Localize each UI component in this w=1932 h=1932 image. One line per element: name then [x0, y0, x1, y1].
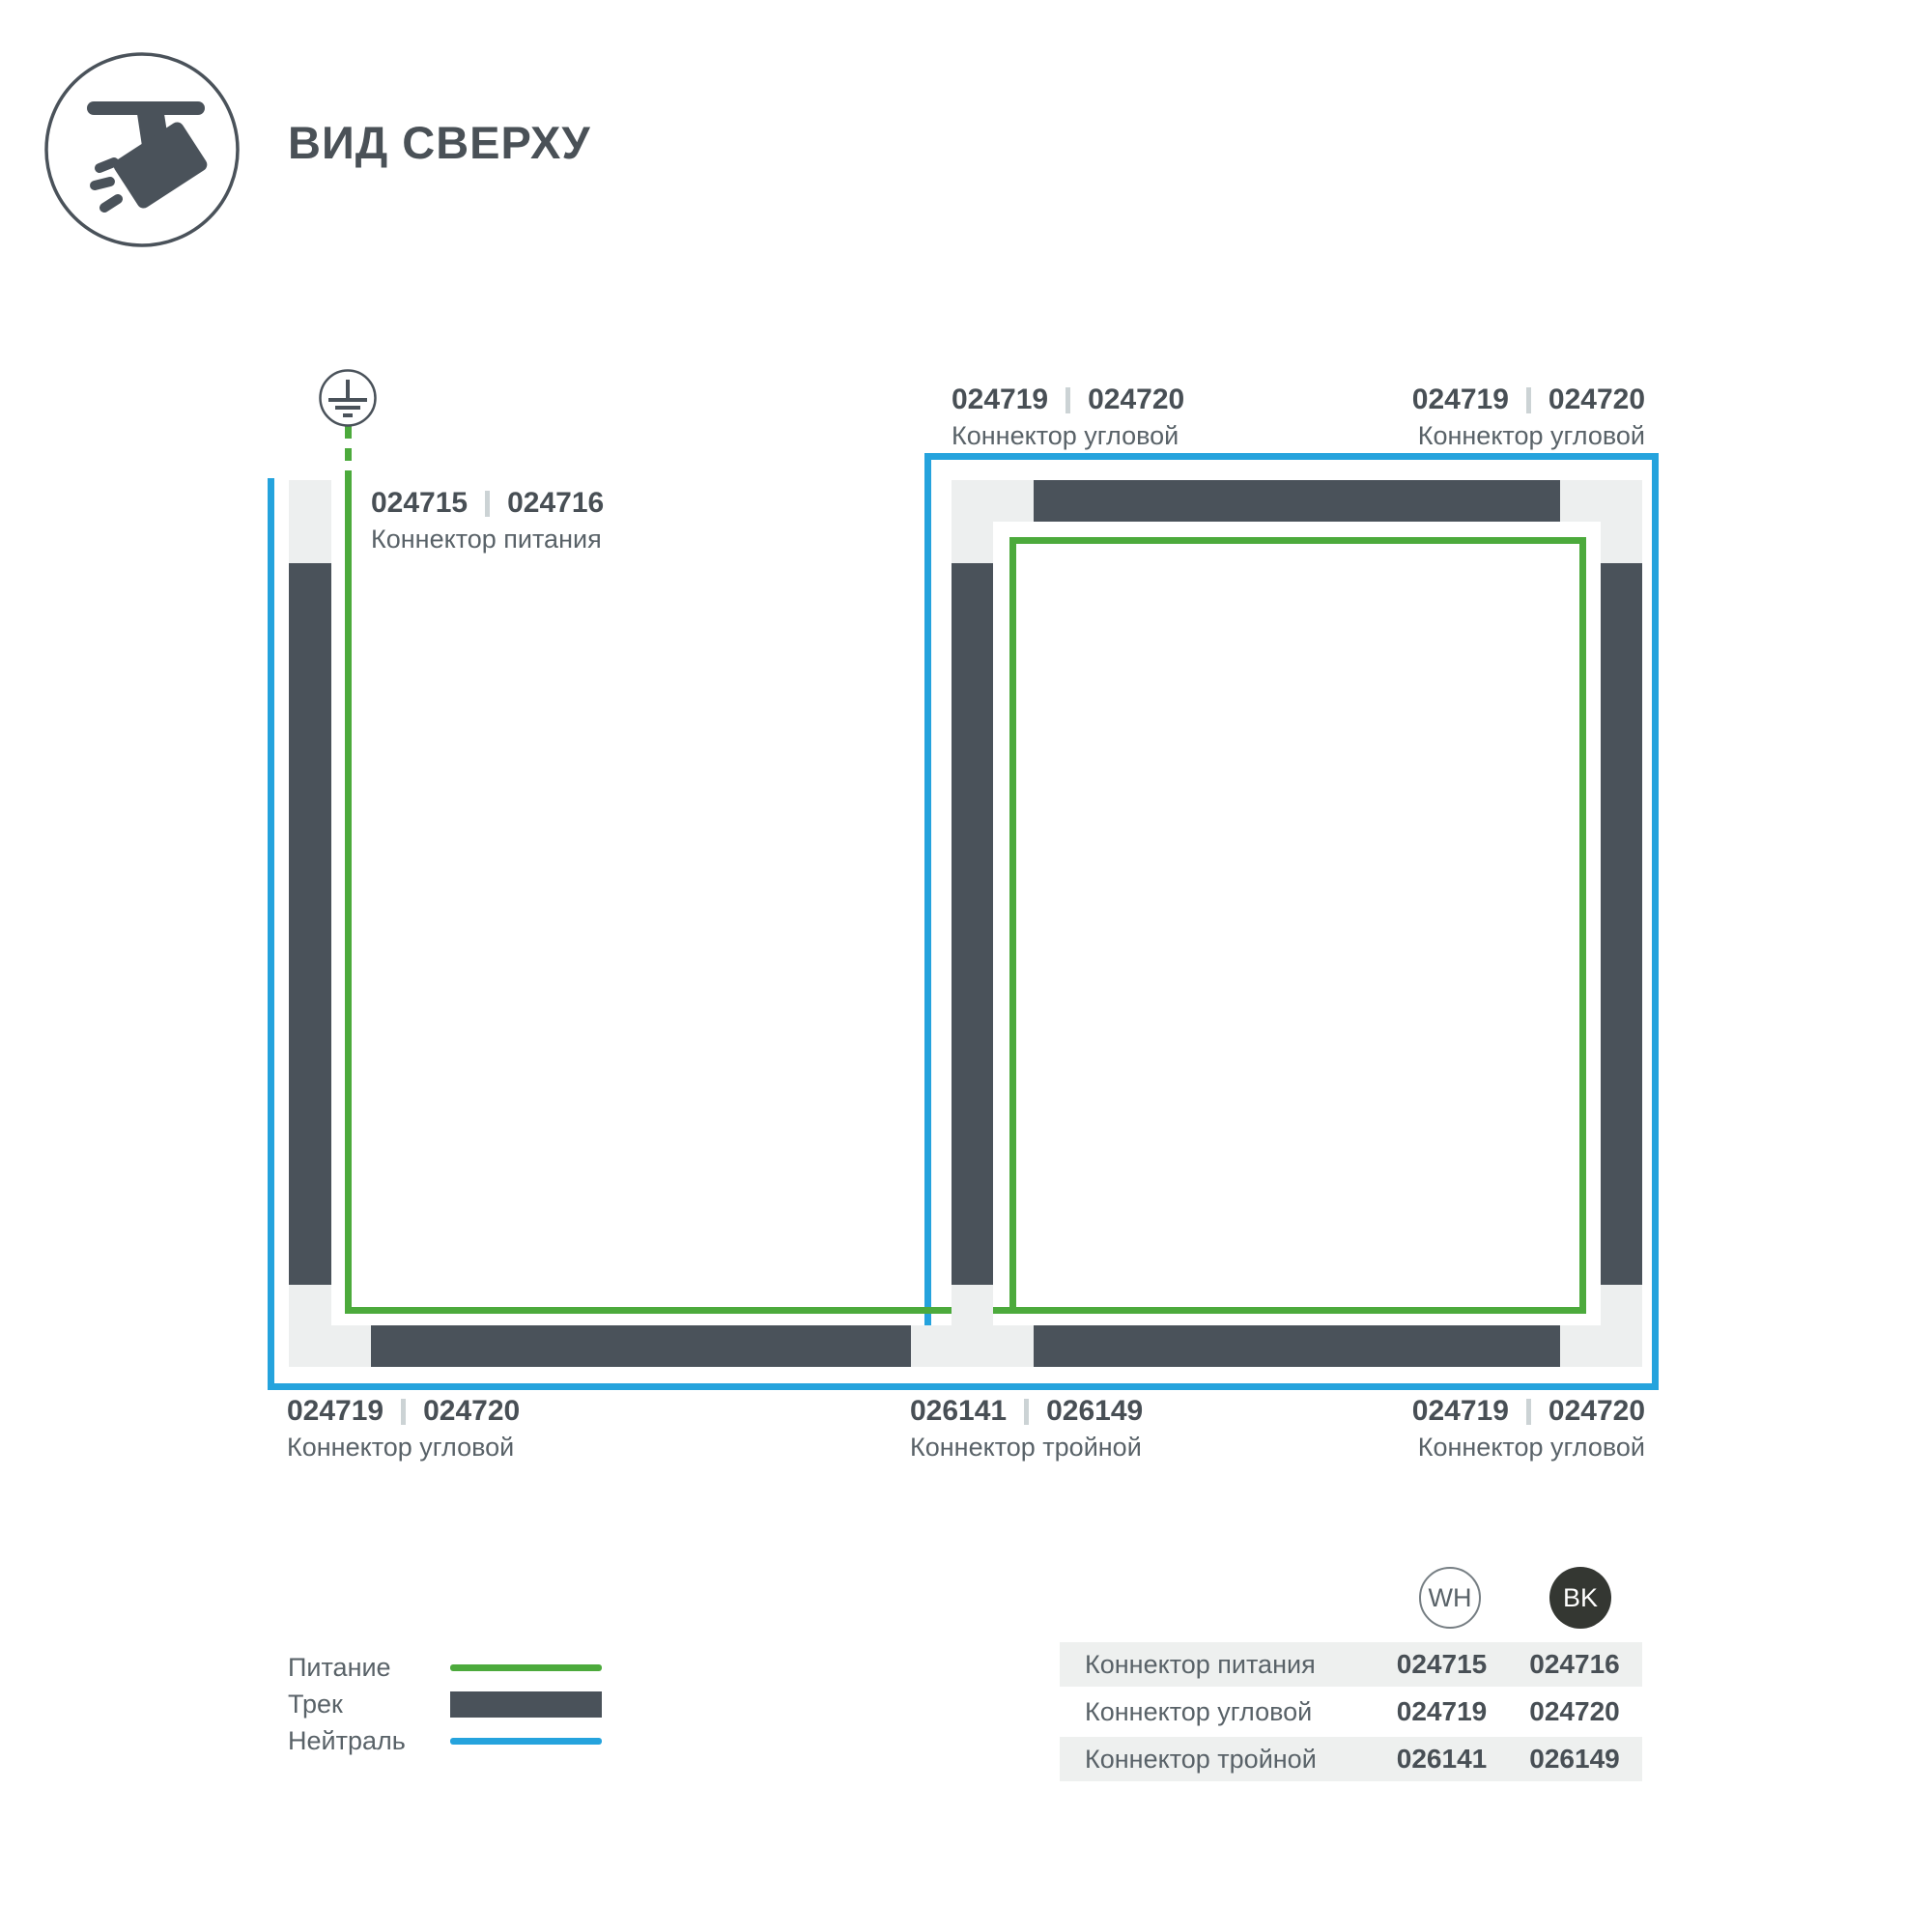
legend-item-neutral: Нейтраль	[288, 1722, 607, 1759]
power-line-swatch	[450, 1664, 602, 1671]
label-corner-bottom-right: 024719 024720 Коннектор угловой	[1412, 1397, 1645, 1461]
neutral-line-right-loop-right	[1652, 453, 1659, 1390]
label-name: Коннектор угловой	[287, 1435, 520, 1461]
power-line-right-loop-left	[1009, 537, 1016, 1314]
corner-connector-top-left-v	[952, 480, 993, 563]
label-power-connector: 024715 024716 Коннектор питания	[371, 489, 604, 553]
legend-label: Нейтраль	[288, 1726, 450, 1756]
power-connector-piece	[289, 480, 331, 563]
label-codes: 024719 024720	[952, 385, 1184, 414]
track-left-loop-left	[289, 563, 331, 1285]
track-bar-swatch	[450, 1691, 602, 1718]
corner-connector-bottom-right-h	[1560, 1325, 1642, 1367]
code-wh: 024719	[1412, 385, 1509, 414]
power-line-left	[345, 480, 352, 1314]
code-separator	[401, 1399, 406, 1425]
code-separator	[1526, 387, 1531, 413]
label-name: Коннектор угловой	[1412, 1435, 1645, 1461]
label-corner-top-left: 024719 024720 Коннектор угловой	[952, 385, 1184, 449]
code-separator	[1065, 387, 1070, 413]
label-codes: 024715 024716	[371, 489, 604, 518]
track-light-icon	[43, 50, 241, 249]
triple-connector-stem	[952, 1285, 993, 1326]
track-right-loop-right	[1601, 563, 1642, 1285]
label-codes: 026141 026149	[910, 1397, 1143, 1426]
code-wh: 026141	[910, 1397, 1007, 1426]
track-right-loop-top	[1034, 480, 1560, 522]
triple-connector-base	[911, 1325, 1034, 1367]
code-bk: 024720	[1548, 385, 1645, 414]
label-codes: 024719 024720	[287, 1397, 520, 1426]
neutral-line-right-loop-top	[924, 453, 1659, 460]
code-separator	[1024, 1399, 1029, 1425]
color-badge-bk: BK	[1549, 1567, 1611, 1629]
neutral-line-bottom	[268, 1383, 1659, 1390]
label-name: Коннектор угловой	[1412, 423, 1645, 449]
corner-connector-top-right-v	[1601, 480, 1642, 563]
part-name: Коннектор тройной	[1060, 1745, 1377, 1775]
color-badge-wh: WH	[1419, 1567, 1481, 1629]
power-line-right-loop-top	[1009, 537, 1586, 544]
table-row: Коннектор угловой 024719 024720	[1060, 1690, 1642, 1734]
label-corner-bottom-left: 024719 024720 Коннектор угловой	[287, 1397, 520, 1461]
code-wh: 024719	[952, 385, 1048, 414]
code-wh: 024719	[287, 1397, 384, 1426]
code-bk: 024720	[1548, 1397, 1645, 1426]
code-separator	[485, 491, 490, 517]
neutral-line-left	[268, 478, 274, 1390]
legend-item-track: Трек	[288, 1686, 607, 1722]
code-bk: 026149	[1046, 1397, 1143, 1426]
top-view-diagram-page: ВИД СВЕРХУ	[0, 0, 1932, 1932]
ground-icon	[318, 368, 378, 428]
code-bk: 024720	[1088, 385, 1184, 414]
power-line-ground-dashed	[345, 426, 352, 481]
label-corner-top-right: 024719 024720 Коннектор угловой	[1412, 385, 1645, 449]
code-bk: 024720	[423, 1397, 520, 1426]
corner-connector-bottom-left-h	[289, 1325, 371, 1367]
part-code-wh: 026141	[1377, 1744, 1507, 1775]
track-right-loop-bottom	[1034, 1325, 1560, 1367]
parts-table: WH BK Коннектор питания 024715 024716 Ко…	[1060, 1567, 1642, 1784]
neutral-line-swatch	[450, 1738, 602, 1745]
label-triple-connector: 026141 026149 Коннектор тройной	[910, 1397, 1143, 1461]
legend: Питание Трек Нейтраль	[288, 1649, 607, 1759]
track-left-loop-bottom	[371, 1325, 911, 1367]
legend-label: Трек	[288, 1690, 450, 1719]
label-codes: 024719 024720	[1412, 385, 1645, 414]
part-name: Коннектор угловой	[1060, 1697, 1377, 1727]
track-right-loop-left	[952, 563, 993, 1285]
part-name: Коннектор питания	[1060, 1650, 1377, 1680]
table-row: Коннектор тройной 026141 026149	[1060, 1737, 1642, 1781]
part-code-wh: 024719	[1377, 1696, 1507, 1727]
legend-item-power: Питание	[288, 1649, 607, 1686]
label-name: Коннектор питания	[371, 526, 604, 553]
page-title: ВИД СВЕРХУ	[288, 116, 591, 169]
code-wh: 024719	[1412, 1397, 1509, 1426]
part-code-bk: 026149	[1507, 1744, 1642, 1775]
code-separator	[1526, 1399, 1531, 1425]
parts-table-header: WH BK	[1060, 1567, 1642, 1629]
table-row: Коннектор питания 024715 024716	[1060, 1642, 1642, 1687]
part-code-bk: 024720	[1507, 1696, 1642, 1727]
label-codes: 024719 024720	[1412, 1397, 1645, 1426]
legend-label: Питание	[288, 1653, 450, 1683]
label-name: Коннектор угловой	[952, 423, 1184, 449]
neutral-line-right-loop-left	[924, 453, 931, 1325]
code-wh: 024715	[371, 489, 468, 518]
part-code-wh: 024715	[1377, 1649, 1507, 1680]
power-line-right-loop-right	[1579, 537, 1586, 1314]
code-bk: 024716	[507, 489, 604, 518]
part-code-bk: 024716	[1507, 1649, 1642, 1680]
label-name: Коннектор тройной	[910, 1435, 1143, 1461]
